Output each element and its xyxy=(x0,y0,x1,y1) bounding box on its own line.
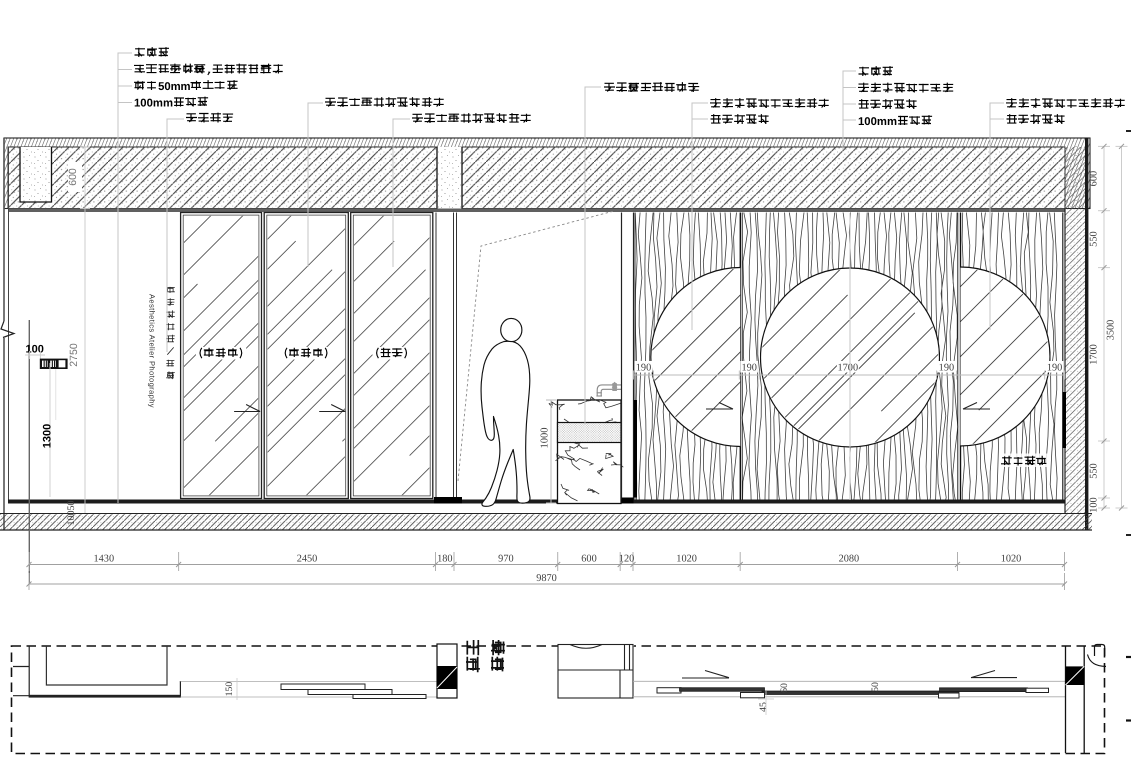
svg-text:550: 550 xyxy=(1089,231,1100,246)
svg-text:45: 45 xyxy=(758,702,769,712)
svg-text:100mm: 100mm xyxy=(858,116,897,128)
svg-text:50: 50 xyxy=(870,682,881,692)
svg-text:190: 190 xyxy=(636,363,651,374)
svg-text:9870: 9870 xyxy=(536,573,557,584)
svg-text:1000: 1000 xyxy=(540,428,551,449)
svg-text:Aesthetics Atelier Photography: Aesthetics Atelier Photography xyxy=(148,294,157,408)
svg-text:190: 190 xyxy=(1047,363,1062,374)
svg-text:180: 180 xyxy=(437,554,452,565)
svg-text:600: 600 xyxy=(1089,171,1100,186)
svg-text:10050: 10050 xyxy=(66,501,77,526)
svg-text:600: 600 xyxy=(581,554,596,565)
svg-text:2080: 2080 xyxy=(839,554,860,565)
svg-text:1700: 1700 xyxy=(1089,344,1100,365)
svg-text:150: 150 xyxy=(224,682,235,697)
svg-text:1020: 1020 xyxy=(1001,554,1022,565)
svg-text:100mm: 100mm xyxy=(134,98,173,110)
svg-text:3500: 3500 xyxy=(1106,320,1117,341)
svg-text:190: 190 xyxy=(741,363,756,374)
svg-text:2450: 2450 xyxy=(297,554,318,565)
svg-text:120: 120 xyxy=(619,554,634,565)
svg-text:2750: 2750 xyxy=(68,343,80,367)
svg-text:190: 190 xyxy=(939,363,954,374)
svg-text:550: 550 xyxy=(1089,463,1100,478)
svg-text:1430: 1430 xyxy=(94,554,115,565)
svg-text:970: 970 xyxy=(498,554,513,565)
svg-text:60: 60 xyxy=(779,683,790,693)
svg-text:1300: 1300 xyxy=(42,424,54,448)
svg-text:50mm: 50mm xyxy=(158,81,191,93)
svg-text:1020: 1020 xyxy=(676,554,697,565)
svg-text:100: 100 xyxy=(1089,497,1100,512)
svg-text:1700: 1700 xyxy=(838,363,859,374)
svg-text:100: 100 xyxy=(26,344,44,356)
svg-text:600: 600 xyxy=(67,168,79,186)
